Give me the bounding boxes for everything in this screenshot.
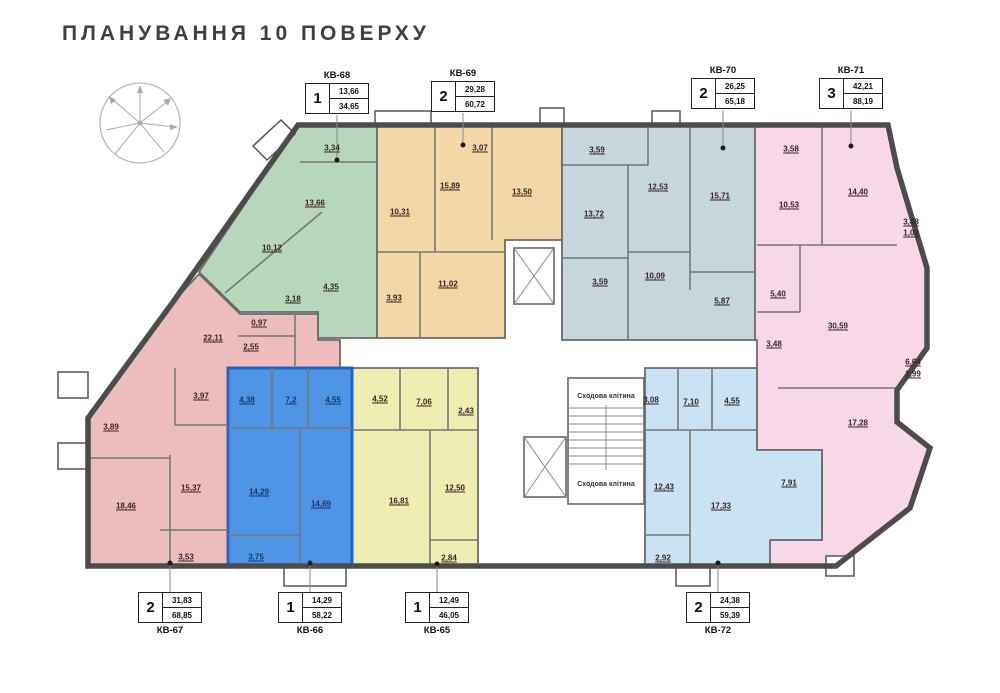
- room-area-label: 3,93: [386, 294, 402, 303]
- room-area-label: 13,66: [305, 199, 325, 208]
- total-area: 34,65: [330, 99, 368, 113]
- apartment-callout-kv72[interactable]: 2 24,38 59,39 КВ-72: [686, 592, 750, 638]
- room-area-label: 1,02: [903, 229, 919, 238]
- room-area-label: 10,09: [645, 272, 665, 281]
- room-area-label: 18,46: [116, 502, 136, 511]
- room-area-label: 12,50: [445, 484, 465, 493]
- apartment-info-box: 1 13,66 34,65: [305, 83, 369, 114]
- room-area-label: 3,07: [472, 144, 488, 153]
- room-area-label: 3,59: [592, 278, 608, 287]
- room-area-label: 7,06: [416, 398, 432, 407]
- room-area-label: 0,97: [251, 319, 267, 328]
- apartment-info-box: 3 42,21 88,19: [819, 78, 883, 109]
- room-area-label: 3,59: [589, 146, 605, 155]
- room-area-label: 14,29: [249, 488, 269, 497]
- apartment-callout-kv68[interactable]: КВ-68 1 13,66 34,65: [305, 68, 369, 114]
- room-area-label: 2,43: [458, 407, 474, 416]
- room-area-label: 3,18: [285, 295, 301, 304]
- room-area-label: 10,31: [390, 208, 410, 217]
- room-area-label: 2,92: [655, 554, 671, 563]
- room-area-label: 3,34: [324, 144, 340, 153]
- living-area: 13,66: [330, 84, 368, 99]
- apartment-callout-kv66[interactable]: 1 14,29 58,22 КВ-66: [278, 592, 342, 638]
- room-area-label: 15,71: [710, 192, 730, 201]
- elevator-shaft-bottom: [524, 437, 566, 497]
- apartment-callout-kv67[interactable]: 2 31,83 68,85 КВ-67: [138, 592, 202, 638]
- apartment-info-box: 2 31,83 68,85: [138, 592, 202, 623]
- room-area-label: 5,87: [714, 297, 730, 306]
- apartment-id: КВ-71: [838, 65, 864, 76]
- room-area-label: 12,53: [648, 183, 668, 192]
- apartment-id: КВ-65: [424, 625, 450, 636]
- room-area-label: 4,38: [239, 396, 255, 405]
- apartment-id: КВ-72: [705, 625, 731, 636]
- room-area-label: 7,91: [781, 479, 797, 488]
- apartment-callout-kv69[interactable]: КВ-69 2 29,28 60,72: [431, 66, 495, 112]
- room-area-label: 13,72: [584, 210, 604, 219]
- room-area-label: 10,53: [779, 201, 799, 210]
- apartment-callout-kv65[interactable]: 1 12,49 46,05 КВ-65: [405, 592, 469, 638]
- rooms-count: 1: [306, 84, 330, 113]
- room-area-label: 3,53: [178, 553, 194, 562]
- room-area-label: 14,69: [311, 500, 331, 509]
- apartment-info-box: 1 14,29 58,22: [278, 592, 342, 623]
- rooms-count: 3: [820, 79, 844, 108]
- total-area: 65,18: [716, 94, 754, 108]
- apartment-id: КВ-66: [297, 625, 323, 636]
- stairwell-label-bottom: Сходова клітина: [577, 480, 635, 488]
- rooms-count: 2: [139, 593, 163, 622]
- room-area-label: 2,55: [243, 343, 259, 352]
- total-area: 59,39: [711, 608, 749, 622]
- living-area: 24,38: [711, 593, 749, 608]
- room-area-label: 4,52: [372, 395, 388, 404]
- apartment-info-box: 2 29,28 60,72: [431, 81, 495, 112]
- room-area-label: 15,89: [440, 182, 460, 191]
- apartment-region-kv69[interactable]: [377, 125, 562, 338]
- living-area: 31,83: [163, 593, 201, 608]
- living-area: 14,29: [303, 593, 341, 608]
- apartment-id: КВ-68: [324, 70, 350, 81]
- floor-plan-page: ПЛАНУВАННЯ 10 ПОВЕРХУ: [0, 0, 1000, 693]
- elevator-shaft-top: [514, 248, 554, 304]
- room-area-label: 10,12: [262, 244, 282, 253]
- room-area-label: 12,43: [654, 483, 674, 492]
- room-area-label: 4,55: [325, 396, 341, 405]
- room-area-label: 1,99: [905, 370, 921, 379]
- living-area: 12,49: [430, 593, 468, 608]
- room-area-label: 11,02: [438, 280, 458, 289]
- rooms-count: 2: [687, 593, 711, 622]
- room-area-label: 7,10: [683, 398, 699, 407]
- room-area-label: 17,33: [711, 502, 731, 511]
- room-area-label: 13,50: [512, 188, 532, 197]
- apartment-info-box: 1 12,49 46,05: [405, 592, 469, 623]
- rooms-count: 1: [279, 593, 303, 622]
- room-area-label: 6,64: [905, 358, 921, 367]
- room-area-label: 4,35: [323, 283, 339, 292]
- room-area-label: 4,55: [724, 397, 740, 406]
- living-area: 26,25: [716, 79, 754, 94]
- rooms-count: 2: [432, 82, 456, 111]
- room-area-label: 3,58: [783, 145, 799, 154]
- room-area-label: 30,59: [828, 322, 848, 331]
- apartment-info-box: 2 24,38 59,39: [686, 592, 750, 623]
- room-area-label: 14,40: [848, 188, 868, 197]
- total-area: 68,85: [163, 608, 201, 622]
- apartment-id: КВ-70: [710, 65, 736, 76]
- apartment-id: КВ-69: [450, 68, 476, 79]
- apartment-info-box: 2 26,25 65,18: [691, 78, 755, 109]
- room-area-label: 3,97: [193, 392, 209, 401]
- room-area-label: 3,48: [766, 340, 782, 349]
- rooms-count: 2: [692, 79, 716, 108]
- room-area-label: 7,2: [285, 396, 296, 405]
- apartment-callout-kv70[interactable]: КВ-70 2 26,25 65,18: [691, 63, 755, 109]
- total-area: 60,72: [456, 97, 494, 111]
- room-area-label: 15,37: [181, 484, 201, 493]
- apartment-region-kv70[interactable]: [562, 125, 755, 340]
- apartment-callout-kv71[interactable]: КВ-71 3 42,21 88,19: [819, 63, 883, 109]
- room-area-label: 3,75: [248, 553, 264, 562]
- living-area: 42,21: [844, 79, 882, 94]
- room-area-label: 3,48: [903, 218, 919, 227]
- room-area-label: 16,81: [389, 497, 409, 506]
- room-area-label: 22,11: [203, 334, 223, 343]
- stairwell-label-top: Сходова клітина: [577, 392, 635, 400]
- total-area: 88,19: [844, 94, 882, 108]
- living-area: 29,28: [456, 82, 494, 97]
- room-area-label: 17,28: [848, 419, 868, 428]
- room-area-label: 2,84: [441, 554, 457, 563]
- apartment-region-kv65[interactable]: [352, 368, 478, 566]
- room-area-label: 3,08: [643, 396, 659, 405]
- room-area-label: 5,40: [770, 290, 786, 299]
- apartment-id: КВ-67: [157, 625, 183, 636]
- total-area: 46,05: [430, 608, 468, 622]
- rooms-count: 1: [406, 593, 430, 622]
- total-area: 58,22: [303, 608, 341, 622]
- room-area-label: 3,89: [103, 423, 119, 432]
